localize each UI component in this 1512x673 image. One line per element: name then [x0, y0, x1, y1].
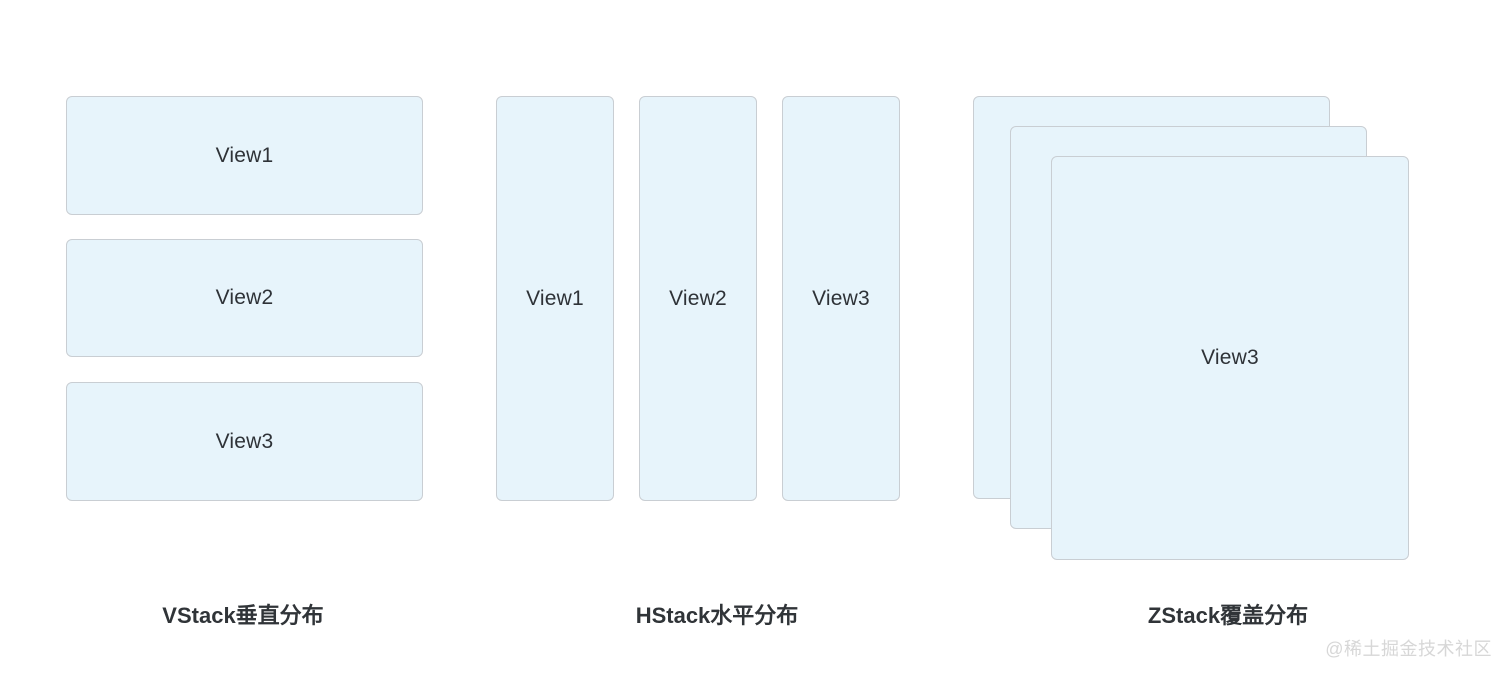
vstack-box-view2-label: View2	[216, 286, 274, 310]
hstack-box-view2-label: View2	[669, 287, 727, 311]
vstack-box-view1-label: View1	[216, 144, 274, 168]
stack-layout-diagram: View1 View2 View3 VStack垂直分布 View1 View2…	[0, 0, 1512, 673]
zstack-caption: ZStack覆盖分布	[1148, 598, 1308, 630]
hstack-box-view1-label: View1	[526, 287, 584, 311]
hstack-box-view3-label: View3	[812, 287, 870, 311]
vstack-box-view3-label: View3	[216, 430, 274, 454]
hstack-box-view1: View1	[496, 96, 614, 501]
vstack-box-view2: View2	[66, 239, 423, 357]
vstack-box-view1: View1	[66, 96, 423, 215]
hstack-box-view2: View2	[639, 96, 757, 501]
vstack-caption: VStack垂直分布	[162, 598, 323, 630]
hstack-box-view3: View3	[782, 96, 900, 501]
vstack-box-view3: View3	[66, 382, 423, 501]
zstack-box-front: View3	[1051, 156, 1409, 560]
zstack-box-front-label: View3	[1201, 346, 1259, 370]
hstack-caption: HStack水平分布	[636, 598, 799, 630]
juejin-watermark: @稀土掘金技术社区	[1325, 635, 1492, 661]
